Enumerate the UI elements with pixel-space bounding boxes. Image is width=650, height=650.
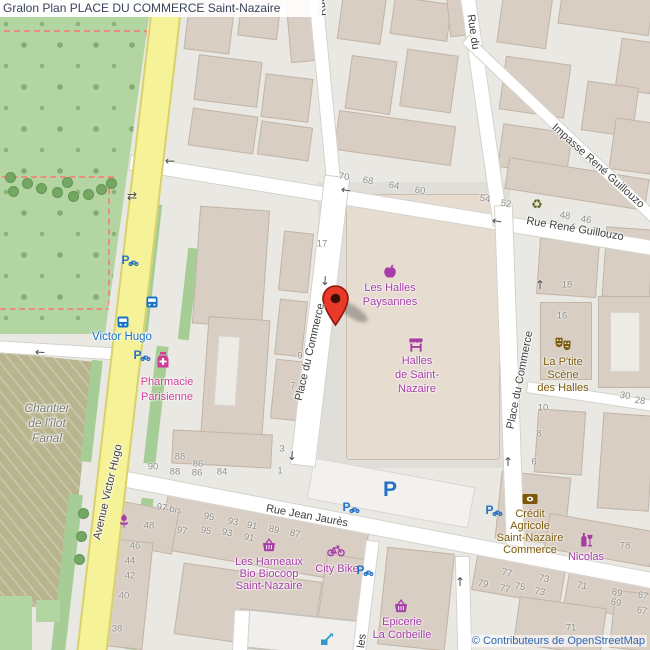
- house-number: 9: [297, 351, 302, 362]
- halles-de-saint-nazaire-label: de Saint-: [395, 369, 439, 381]
- house-number: 40: [119, 591, 130, 602]
- basket-icon: [394, 599, 409, 613]
- house-number: 78: [620, 541, 631, 552]
- house-number: 77: [501, 567, 513, 580]
- street-label-les: les: [355, 633, 369, 648]
- bike-parking-icon: P: [356, 565, 373, 577]
- house-number: 88: [175, 452, 186, 463]
- bike-parking-icon: P: [485, 505, 502, 517]
- oneway-arrow-icon: ⇄: [127, 189, 137, 203]
- oneway-arrow-icon: ←: [340, 182, 352, 197]
- nicolas-label: Nicolas: [568, 551, 604, 563]
- city-bike-label: City Bike: [315, 563, 358, 575]
- house-number: 68: [362, 175, 374, 188]
- credit-agricole-saint-nazaire-commerce-label: Crédit: [515, 508, 544, 520]
- street-label-place-du-commerce: Place du Commerce: [505, 330, 536, 430]
- pharmacie-parisienne-label: Pharmacie: [141, 376, 194, 388]
- oneway-arrow-icon: ←: [491, 213, 503, 228]
- house-number: 64: [388, 180, 400, 193]
- oneway-arrow-icon: ↑: [503, 455, 513, 469]
- bicycle-icon: [327, 545, 345, 557]
- credit-agricole-saint-nazaire-commerce-label: Saint-Nazaire: [497, 532, 564, 544]
- chantier-de-lilot-fanal-label: de l'îlot: [28, 416, 66, 430]
- house-number: 75: [514, 581, 526, 594]
- osm-attribution-link[interactable]: © Contributeurs de OpenStreetMap: [470, 635, 647, 647]
- house-number: 48: [559, 210, 571, 223]
- bank-icon: [522, 494, 538, 505]
- street-label-rue-ren-guillouzo: Rue René Guillouzo: [525, 215, 624, 243]
- bike-parking-icon: P: [121, 255, 138, 267]
- street-label-impasse-ren-guillouzo: Impasse René Guillouzo: [549, 121, 646, 210]
- market-icon: [408, 338, 424, 353]
- house-number: 3: [279, 444, 284, 455]
- house-number: 54: [479, 193, 491, 206]
- bike-parking-icon: P: [133, 350, 150, 362]
- pharmacie-parisienne-label: Parisienne: [141, 391, 193, 403]
- map-title: Gralon Plan PLACE DU COMMERCE Saint-Naza…: [0, 0, 322, 17]
- house-number: 71: [566, 623, 577, 634]
- house-number: 97: [176, 525, 188, 538]
- les-hameaux-bio-biocoop-label: Bio Biocoop: [240, 568, 299, 580]
- works-icon: [320, 632, 334, 646]
- house-number: 60: [414, 185, 426, 198]
- house-number: 93: [221, 527, 233, 540]
- house-number: 18: [562, 280, 573, 291]
- oneway-arrow-icon: ↓: [286, 449, 297, 464]
- la-ptite-scene-des-halles-label: des Halles: [537, 382, 588, 394]
- house-number: 42: [125, 571, 136, 582]
- house-number: 28: [634, 395, 646, 408]
- house-number: 95: [203, 511, 215, 524]
- labels-layer: Rue René GuillouzoImpasse René Guillouzo…: [0, 0, 650, 650]
- halles-de-saint-nazaire-label: Halles: [402, 355, 433, 367]
- house-number: 73: [538, 573, 550, 586]
- credit-agricole-saint-nazaire-commerce-label: Agricole: [510, 520, 550, 532]
- apple-icon: [383, 264, 398, 279]
- house-number: 93: [227, 516, 239, 529]
- les-halles-paysannes-label: Paysannes: [363, 296, 417, 308]
- house-number: 89: [268, 524, 280, 537]
- epicerie-la-corbeille-label: La Corbeille: [373, 629, 432, 641]
- parking-icon: P: [383, 480, 397, 500]
- house-number: 38: [112, 624, 123, 635]
- oneway-arrow-icon: ↑: [455, 575, 465, 589]
- house-number: 67: [636, 605, 648, 618]
- house-number: 17: [317, 239, 328, 250]
- les-hameaux-bio-biocoop-label: Les Hameaux: [235, 556, 303, 568]
- recycle-icon: ♻: [531, 199, 543, 212]
- bus-icon: [117, 316, 129, 328]
- les-hameaux-bio-biocoop-label: Saint-Nazaire: [236, 580, 303, 592]
- street-label-rue-du: Rue du: [465, 14, 482, 51]
- house-number: 69: [610, 597, 622, 610]
- house-number: 10: [538, 403, 549, 414]
- oneway-arrow-icon: ←: [35, 345, 46, 360]
- house-number: 79: [477, 578, 489, 591]
- halles-de-saint-nazaire-label: Nazaire: [398, 383, 436, 395]
- house-number: 73: [534, 586, 546, 599]
- house-number: 95: [200, 525, 212, 538]
- credit-agricole-saint-nazaire-commerce-label: Commerce: [503, 544, 557, 556]
- flower-icon: [119, 514, 130, 529]
- house-number: 84: [217, 467, 228, 478]
- house-number: 1: [277, 466, 282, 477]
- house-number: 67: [637, 590, 649, 603]
- chantier-de-lilot-fanal-label: Chantier: [24, 401, 69, 415]
- oneway-arrow-icon: ↑: [535, 278, 545, 292]
- pharmacy-icon: [156, 352, 170, 368]
- wine-icon: [579, 533, 593, 548]
- house-number: 71: [576, 580, 588, 593]
- house-number: 91: [246, 520, 258, 533]
- les-halles-paysannes-label: Les Halles: [364, 282, 415, 294]
- masks-icon: [555, 337, 572, 351]
- map-canvas: Rue René GuillouzoImpasse René Guillouzo…: [0, 0, 650, 650]
- basket-icon: [262, 538, 277, 552]
- house-number: 7: [290, 381, 295, 392]
- house-number: 48: [144, 521, 155, 532]
- house-number: 44: [125, 556, 136, 567]
- house-number: 91: [243, 532, 255, 545]
- la-ptite-scene-des-halles-label: La P'tite: [543, 356, 582, 368]
- bus-stop-victor-hugo-label: Victor Hugo: [92, 331, 152, 343]
- house-number: 46: [580, 214, 592, 227]
- bus-icon: [146, 296, 158, 308]
- house-number: 70: [338, 171, 350, 184]
- house-number: 90: [148, 462, 159, 473]
- house-number: 87: [289, 528, 301, 541]
- house-number: 88: [170, 467, 181, 478]
- chantier-de-lilot-fanal-label: Fanal: [32, 431, 62, 445]
- oneway-arrow-icon: ←: [165, 154, 175, 168]
- house-number: 8: [536, 429, 541, 440]
- house-number: 77: [499, 583, 511, 596]
- house-number: 86: [192, 468, 203, 479]
- oneway-arrow-icon: ↓: [319, 274, 330, 289]
- house-number: 16: [557, 311, 568, 322]
- house-number: 97 bis: [156, 501, 183, 516]
- epicerie-la-corbeille-label: Epicerie: [382, 616, 422, 628]
- house-number: 6: [531, 457, 536, 468]
- house-number: 30: [619, 390, 631, 403]
- house-number: 46: [130, 541, 141, 552]
- house-number: 52: [500, 198, 512, 211]
- bike-parking-icon: P: [342, 502, 359, 514]
- la-ptite-scene-des-halles-label: Scène: [547, 369, 578, 381]
